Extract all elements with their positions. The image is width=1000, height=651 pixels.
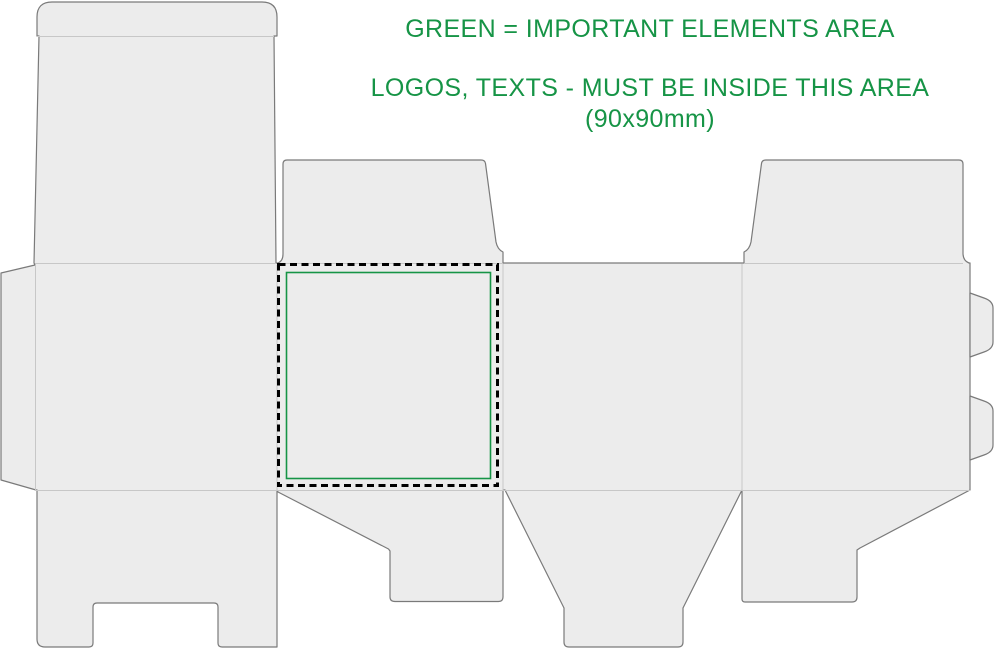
note-line-2: LOGOS, TEXTS - MUST BE INSIDE THIS AREA xyxy=(371,74,930,102)
dieline-diagram-page: GREEN = IMPORTANT ELEMENTS AREA LOGOS, T… xyxy=(0,0,1000,651)
box-dieline-drawing: GREEN = IMPORTANT ELEMENTS AREA LOGOS, T… xyxy=(0,0,1000,651)
note-line-3: (90x90mm) xyxy=(585,105,715,133)
glue-tab-bottom xyxy=(970,396,993,460)
glue-tab-top xyxy=(970,293,993,357)
note-line-1: GREEN = IMPORTANT ELEMENTS AREA xyxy=(405,15,895,43)
